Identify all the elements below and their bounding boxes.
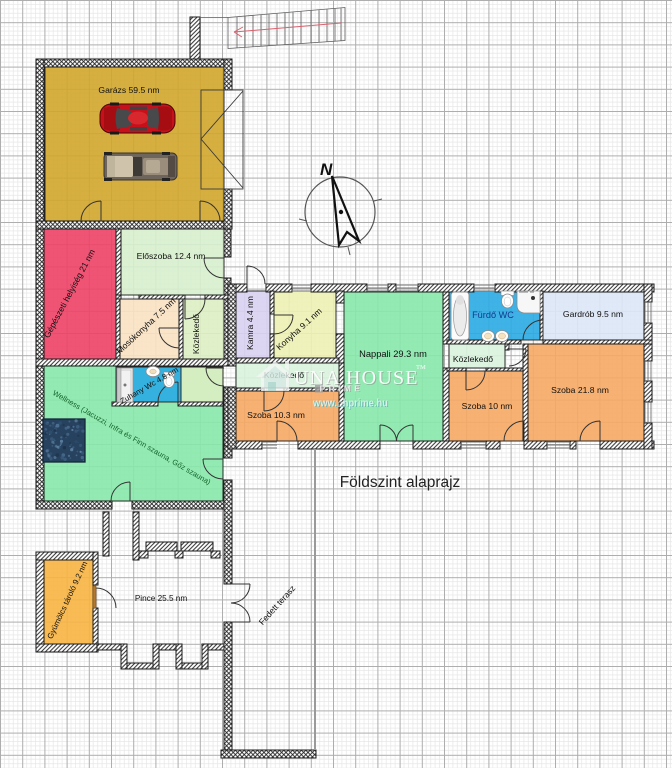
svg-text:Szoba 10.3 nm: Szoba 10.3 nm	[247, 410, 305, 420]
svg-text:Földszint alaprajz: Földszint alaprajz	[340, 474, 461, 491]
svg-text:Előszoba 12.4 nm: Előszoba 12.4 nm	[137, 251, 206, 261]
svg-text:Gardrób 9.5 nm: Gardrób 9.5 nm	[563, 309, 623, 319]
svg-text:Közlekedő: Közlekedő	[453, 354, 493, 364]
svg-text:PRIME: PRIME	[319, 383, 363, 393]
svg-text:Fürdő WC: Fürdő WC	[472, 310, 514, 320]
svg-text:Szoba 21.8 nm: Szoba 21.8 nm	[551, 385, 609, 395]
svg-text:Szoba 10 nm: Szoba 10 nm	[462, 401, 513, 411]
svg-text:www.⌂hprime.hu: www.⌂hprime.hu	[312, 397, 388, 409]
svg-text:N: N	[320, 160, 333, 179]
svg-text:Garázs 59.5 nm: Garázs 59.5 nm	[98, 85, 159, 95]
svg-text:Kamra 4.4 nm: Kamra 4.4 nm	[245, 296, 255, 350]
svg-text:Közlekedő: Közlekedő	[191, 314, 201, 354]
svg-text:Nappali 29.3 nm: Nappali 29.3 nm	[359, 349, 427, 359]
svg-text:TM: TM	[416, 364, 426, 371]
svg-text:Pince 25.5 nm: Pince 25.5 nm	[135, 594, 188, 603]
